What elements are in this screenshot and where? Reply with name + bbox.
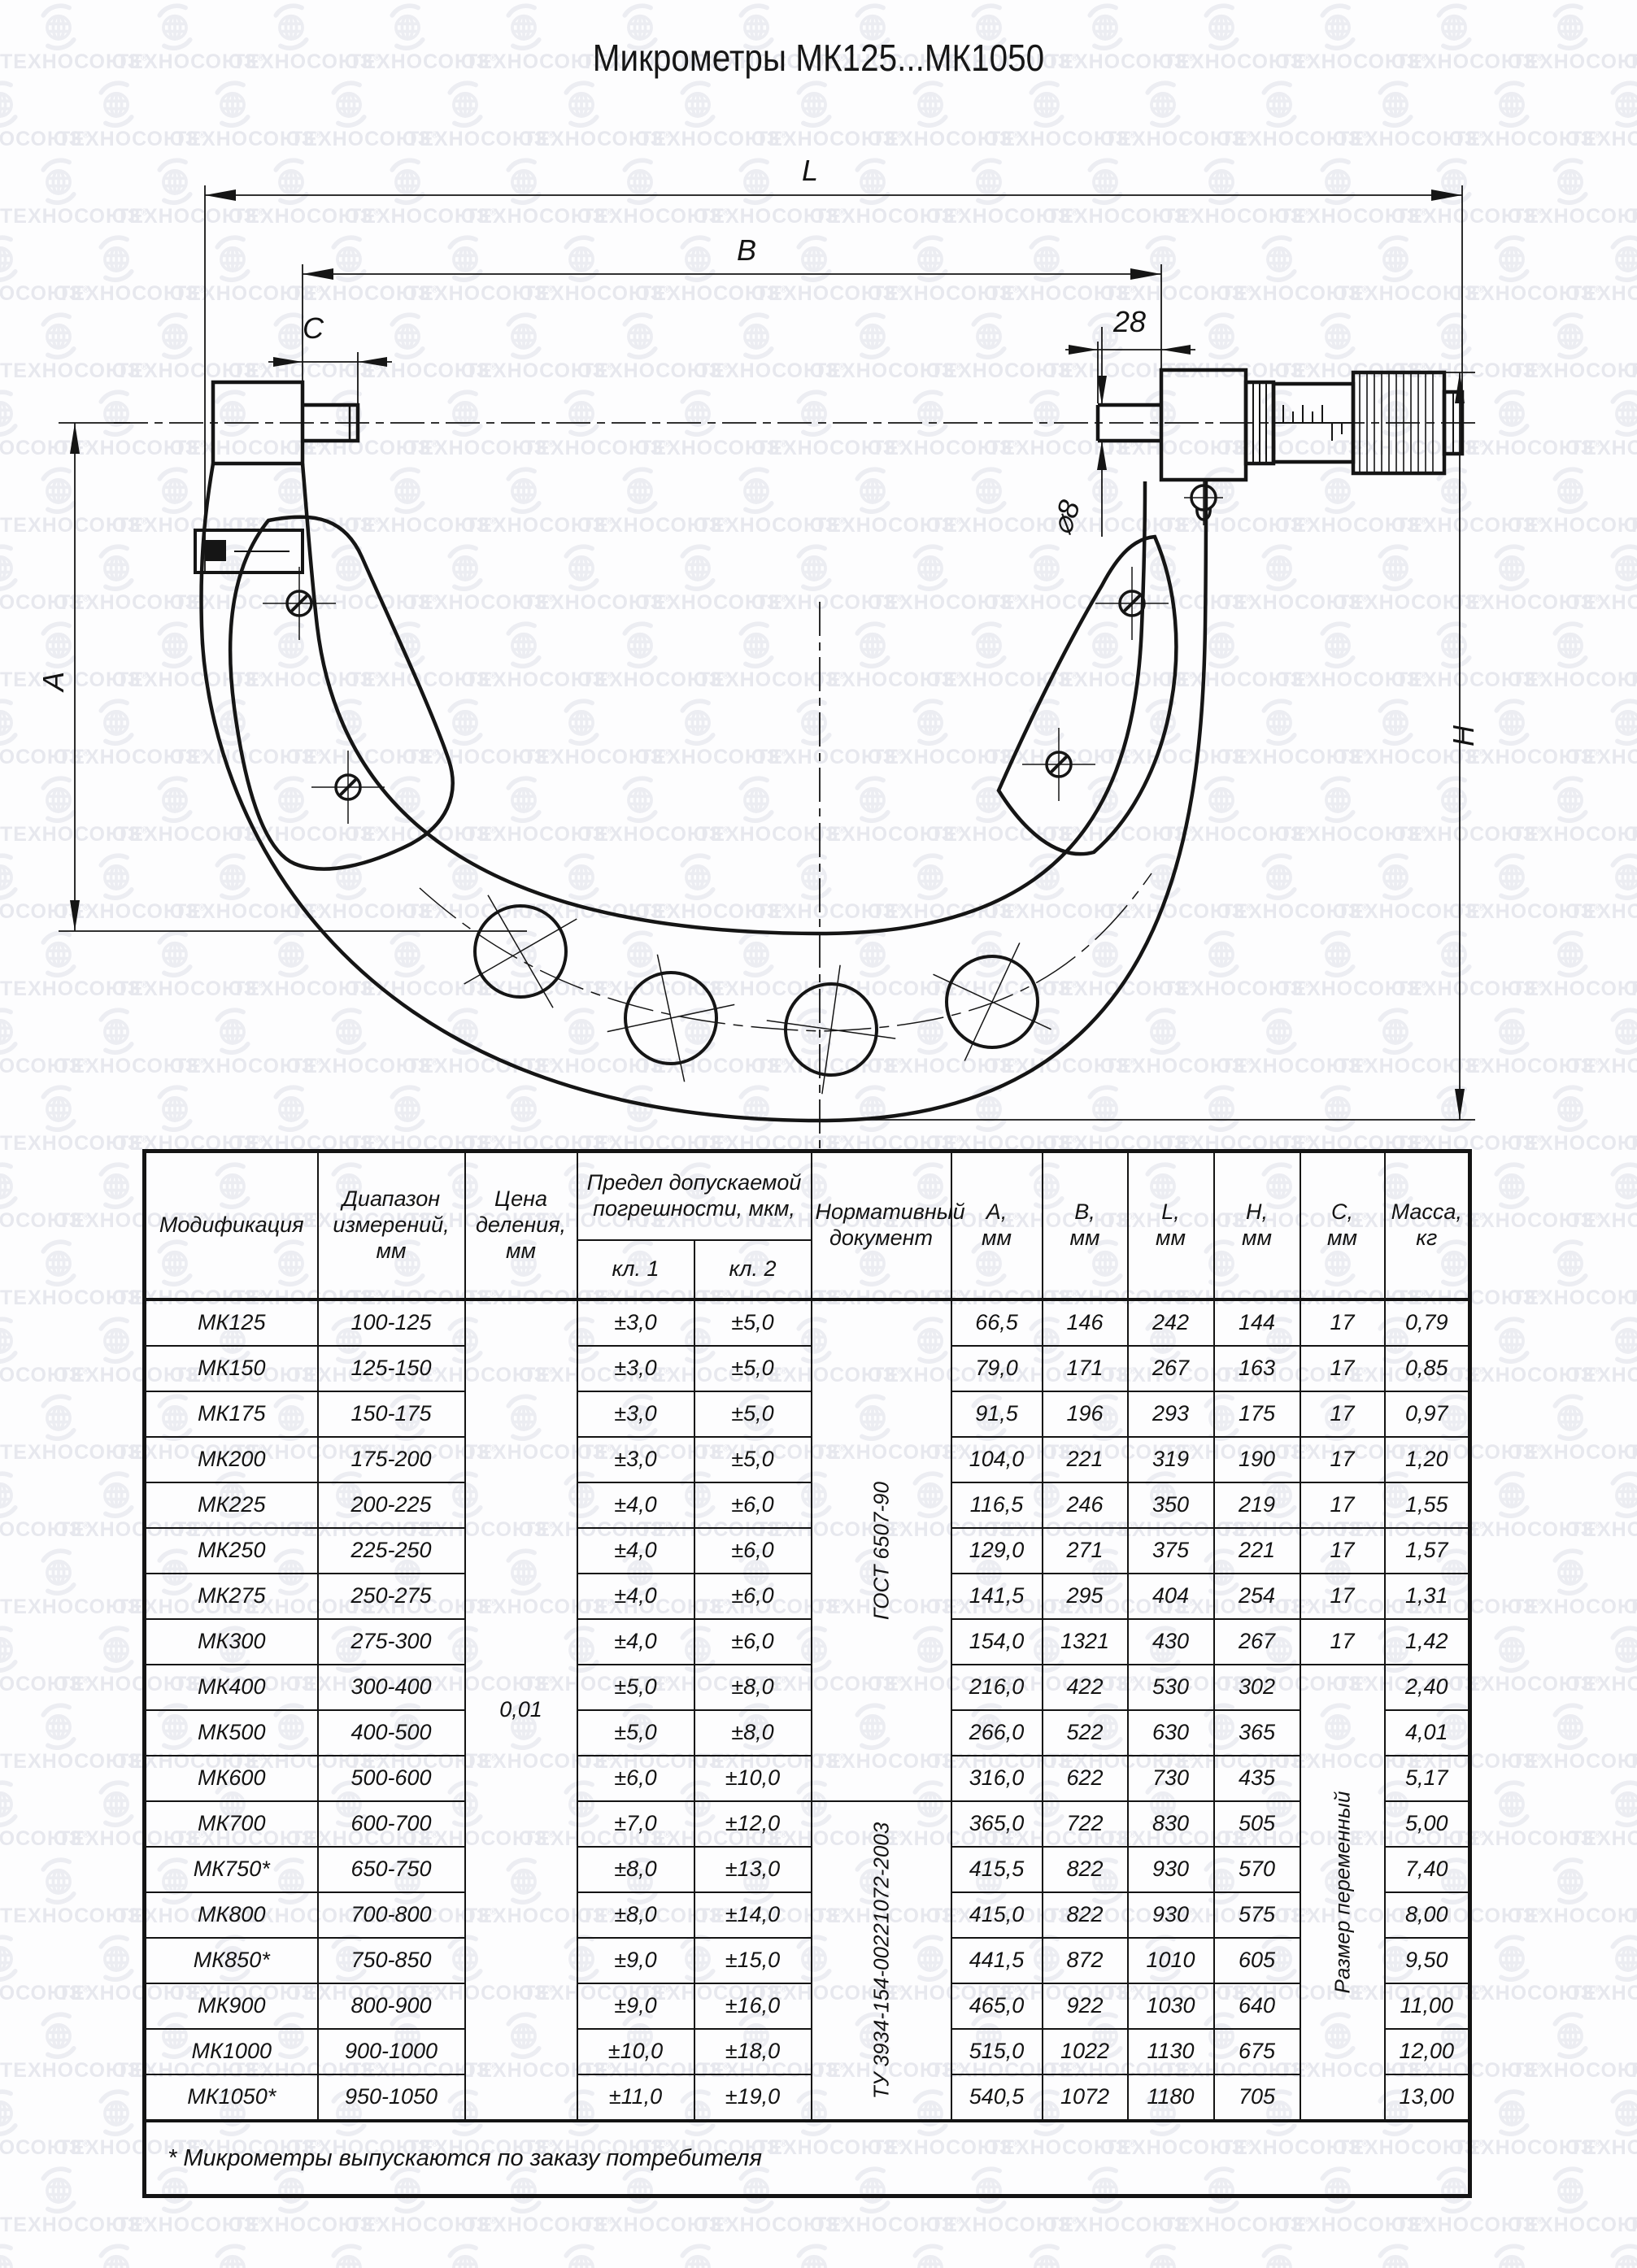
cell-dim-l: 375 xyxy=(1128,1528,1214,1574)
cell-class2: ±6,0 xyxy=(694,1574,812,1619)
cell-dim-h: 267 xyxy=(1214,1619,1300,1665)
cell-model: МК750* xyxy=(145,1847,318,1892)
insulating-plate-right xyxy=(999,537,1176,854)
cell-mass: 5,00 xyxy=(1385,1801,1470,1847)
cell-dim-b: 146 xyxy=(1043,1299,1128,1346)
cell-dim-b: 822 xyxy=(1043,1847,1128,1892)
cell-dim-h: 163 xyxy=(1214,1346,1300,1391)
cell-dim-l: 1030 xyxy=(1128,1983,1214,2029)
cell-dim-a: 66,5 xyxy=(951,1299,1043,1346)
cell-class1: ±10,0 xyxy=(577,2029,694,2074)
cell-dim-h: 254 xyxy=(1214,1574,1300,1619)
table-row: МК800700-800±8,0±14,0415,08229305758,00 xyxy=(145,1892,1470,1938)
cell-dim-l: 267 xyxy=(1128,1346,1214,1391)
cell-dim-l: 930 xyxy=(1128,1847,1214,1892)
cell-model: МК200 xyxy=(145,1437,318,1482)
table-row: МК125100-1250,01±3,0±5,0ГОСТ 6507-9066,5… xyxy=(145,1299,1470,1346)
cell-dim-l: 630 xyxy=(1128,1710,1214,1756)
cell-class2: ±6,0 xyxy=(694,1482,812,1528)
cell-class2: ±8,0 xyxy=(694,1665,812,1710)
cell-dim-a: 91,5 xyxy=(951,1391,1043,1437)
cell-model: МК600 xyxy=(145,1756,318,1801)
cell-dim-b: 1321 xyxy=(1043,1619,1128,1665)
cell-model: МК250 xyxy=(145,1528,318,1574)
cell-dim-h: 190 xyxy=(1214,1437,1300,1482)
cell-range: 900-1000 xyxy=(318,2029,465,2074)
cell-model: МК125 xyxy=(145,1299,318,1346)
cell-class2: ±6,0 xyxy=(694,1528,812,1574)
cell-class1: ±5,0 xyxy=(577,1710,694,1756)
cell-class2: ±5,0 xyxy=(694,1299,812,1346)
cell-dim-h: 505 xyxy=(1214,1801,1300,1847)
cell-dim-a: 365,0 xyxy=(951,1801,1043,1847)
cell-dim-h: 605 xyxy=(1214,1938,1300,1983)
cell-dim-b: 822 xyxy=(1043,1892,1128,1938)
col-header-dim-l: L, мм xyxy=(1128,1151,1214,1300)
table-row: МК700600-700±7,0±12,0ТУ 3934-154-0022107… xyxy=(145,1801,1470,1847)
cell-class2: ±14,0 xyxy=(694,1892,812,1938)
cell-range: 150-175 xyxy=(318,1391,465,1437)
cell-dim-b: 872 xyxy=(1043,1938,1128,1983)
micrometer-technical-drawing: L B C 28 ⌀8 A H xyxy=(0,0,1637,1155)
table-row: МК150125-150±3,0±5,079,0171267163170,85 xyxy=(145,1346,1470,1391)
cell-dim-h: 675 xyxy=(1214,2029,1300,2074)
cell-range: 600-700 xyxy=(318,1801,465,1847)
cell-document-gost: ГОСТ 6507-90 xyxy=(812,1299,951,1801)
cell-dim-a: 216,0 xyxy=(951,1665,1043,1710)
col-header-mass: Масса, кг xyxy=(1385,1151,1470,1300)
cell-dim-b: 221 xyxy=(1043,1437,1128,1482)
spec-table: Модификация Диапазон измерений, мм Цена … xyxy=(142,1149,1472,2198)
dim-label-28: 28 xyxy=(1112,305,1146,338)
cell-class1: ±5,0 xyxy=(577,1665,694,1710)
cell-dim-h: 575 xyxy=(1214,1892,1300,1938)
cell-mass: 0,97 xyxy=(1385,1391,1470,1437)
col-header-dim-a: А, мм xyxy=(951,1151,1043,1300)
cell-mass: 13,00 xyxy=(1385,2074,1470,2121)
cell-mass: 9,50 xyxy=(1385,1938,1470,1983)
cell-mass: 8,00 xyxy=(1385,1892,1470,1938)
col-header-class2: кл. 2 xyxy=(694,1240,812,1299)
cell-model: МК800 xyxy=(145,1892,318,1938)
label-plate xyxy=(195,530,303,572)
cell-class2: ±8,0 xyxy=(694,1710,812,1756)
cell-mass: 1,20 xyxy=(1385,1437,1470,1482)
cell-dim-b: 271 xyxy=(1043,1528,1128,1574)
cell-dim-h: 705 xyxy=(1214,2074,1300,2121)
cell-dim-a: 266,0 xyxy=(951,1710,1043,1756)
cell-dim-b: 295 xyxy=(1043,1574,1128,1619)
cell-dim-l: 404 xyxy=(1128,1574,1214,1619)
cell-mass: 0,79 xyxy=(1385,1299,1470,1346)
cell-dim-h: 435 xyxy=(1214,1756,1300,1801)
cell-range: 950-1050 xyxy=(318,2074,465,2121)
cell-dim-c-variable: Размер переменный xyxy=(1300,1665,1385,2121)
catalog-page: Микрометры МК125...МК1050 xyxy=(0,0,1637,2268)
cell-dim-a: 141,5 xyxy=(951,1574,1043,1619)
cell-class1: ±4,0 xyxy=(577,1619,694,1665)
dim-label-B: B xyxy=(737,233,756,267)
table-row: МК1000900-1000±10,0±18,0515,010221130675… xyxy=(145,2029,1470,2074)
cell-dim-h: 302 xyxy=(1214,1665,1300,1710)
cell-dim-b: 422 xyxy=(1043,1665,1128,1710)
dim-label-dia8: ⌀8 xyxy=(1044,496,1086,538)
cell-dim-l: 319 xyxy=(1128,1437,1214,1482)
table-row: МК500400-500±5,0±8,0266,05226303654,01 xyxy=(145,1710,1470,1756)
cell-dim-c: 17 xyxy=(1300,1391,1385,1437)
cell-dim-a: 441,5 xyxy=(951,1938,1043,1983)
cell-range: 650-750 xyxy=(318,1847,465,1892)
cell-mass: 1,57 xyxy=(1385,1528,1470,1574)
cell-class1: ±8,0 xyxy=(577,1892,694,1938)
cell-mass: 7,40 xyxy=(1385,1847,1470,1892)
cell-range: 100-125 xyxy=(318,1299,465,1346)
cell-dim-c: 17 xyxy=(1300,1299,1385,1346)
head-bracket xyxy=(1161,370,1246,480)
cell-mass: 0,85 xyxy=(1385,1346,1470,1391)
cell-dim-h: 365 xyxy=(1214,1710,1300,1756)
cell-class2: ±5,0 xyxy=(694,1437,812,1482)
cell-range: 800-900 xyxy=(318,1983,465,2029)
col-header-division: Цена деления, мм xyxy=(465,1151,577,1300)
cell-dim-b: 522 xyxy=(1043,1710,1128,1756)
cell-class1: ±6,0 xyxy=(577,1756,694,1801)
cell-class1: ±8,0 xyxy=(577,1847,694,1892)
cell-dim-b: 922 xyxy=(1043,1983,1128,2029)
dim-label-C: C xyxy=(303,311,324,345)
cell-range: 225-250 xyxy=(318,1528,465,1574)
cell-dim-a: 79,0 xyxy=(951,1346,1043,1391)
cell-class1: ±9,0 xyxy=(577,1983,694,2029)
cell-range: 275-300 xyxy=(318,1619,465,1665)
cell-class1: ±9,0 xyxy=(577,1938,694,1983)
col-header-dim-c: С, мм xyxy=(1300,1151,1385,1300)
cell-class1: ±4,0 xyxy=(577,1528,694,1574)
cell-model: МК1000 xyxy=(145,2029,318,2074)
cell-dim-l: 530 xyxy=(1128,1665,1214,1710)
table-row: МК850*750-850±9,0±15,0441,587210106059,5… xyxy=(145,1938,1470,1983)
cell-model: МК225 xyxy=(145,1482,318,1528)
cell-mass: 1,42 xyxy=(1385,1619,1470,1665)
cell-mass: 2,40 xyxy=(1385,1665,1470,1710)
dim-label-H: H xyxy=(1447,725,1480,747)
cell-class2: ±5,0 xyxy=(694,1391,812,1437)
cell-model: МК850* xyxy=(145,1938,318,1983)
cell-class1: ±3,0 xyxy=(577,1391,694,1437)
cell-class2: ±16,0 xyxy=(694,1983,812,2029)
col-header-document: Нормативный документ xyxy=(812,1151,951,1300)
cell-mass: 4,01 xyxy=(1385,1710,1470,1756)
frame-outer-contour xyxy=(202,464,1206,1121)
cell-dim-a: 154,0 xyxy=(951,1619,1043,1665)
cell-model: МК1050* xyxy=(145,2074,318,2121)
cell-dim-l: 293 xyxy=(1128,1391,1214,1437)
cell-class2: ±18,0 xyxy=(694,2029,812,2074)
cell-division-merged: 0,01 xyxy=(465,1299,577,2121)
cell-range: 125-150 xyxy=(318,1346,465,1391)
cell-dim-h: 219 xyxy=(1214,1482,1300,1528)
cell-class1: ±3,0 xyxy=(577,1346,694,1391)
cell-class2: ±10,0 xyxy=(694,1756,812,1801)
cell-dim-c: 17 xyxy=(1300,1482,1385,1528)
cell-dim-c: 17 xyxy=(1300,1346,1385,1391)
cell-dim-c: 17 xyxy=(1300,1574,1385,1619)
cell-model: МК700 xyxy=(145,1801,318,1847)
cell-dim-l: 1010 xyxy=(1128,1938,1214,1983)
cell-dim-c: 17 xyxy=(1300,1528,1385,1574)
cell-range: 700-800 xyxy=(318,1892,465,1938)
frame-inner-contour xyxy=(303,464,1145,934)
plate-screws xyxy=(263,567,1169,824)
cell-class2: ±13,0 xyxy=(694,1847,812,1892)
cell-dim-l: 1130 xyxy=(1128,2029,1214,2074)
cell-dim-h: 175 xyxy=(1214,1391,1300,1437)
cell-dim-l: 730 xyxy=(1128,1756,1214,1801)
table-row: МК200175-200±3,0±5,0104,0221319190171,20 xyxy=(145,1437,1470,1482)
col-header-range: Диапазон измерений, мм xyxy=(318,1151,465,1300)
cell-dim-c: 17 xyxy=(1300,1437,1385,1482)
cell-range: 500-600 xyxy=(318,1756,465,1801)
cell-model: МК175 xyxy=(145,1391,318,1437)
cell-class1: ±4,0 xyxy=(577,1482,694,1528)
insulating-plate-left xyxy=(230,517,453,869)
cell-model: МК150 xyxy=(145,1346,318,1391)
cell-dim-a: 540,5 xyxy=(951,2074,1043,2121)
cell-dim-b: 622 xyxy=(1043,1756,1128,1801)
cell-range: 300-400 xyxy=(318,1665,465,1710)
cell-dim-l: 242 xyxy=(1128,1299,1214,1346)
cell-range: 400-500 xyxy=(318,1710,465,1756)
spec-table-body: МК125100-1250,01±3,0±5,0ГОСТ 6507-9066,5… xyxy=(145,1299,1470,2121)
table-row: МК400300-400±5,0±8,0216,0422530302Размер… xyxy=(145,1665,1470,1710)
cell-dim-b: 1022 xyxy=(1043,2029,1128,2074)
cell-dim-h: 570 xyxy=(1214,1847,1300,1892)
cell-model: МК900 xyxy=(145,1983,318,2029)
cell-dim-a: 415,5 xyxy=(951,1847,1043,1892)
cell-class1: ±11,0 xyxy=(577,2074,694,2121)
cell-class2: ±19,0 xyxy=(694,2074,812,2121)
cell-dim-b: 196 xyxy=(1043,1391,1128,1437)
col-header-error-limit: Предел допускаемой погрешности, мкм, xyxy=(577,1151,812,1241)
table-row: МК275250-275±4,0±6,0141,5295404254171,31 xyxy=(145,1574,1470,1619)
cell-class2: ±6,0 xyxy=(694,1619,812,1665)
cell-dim-l: 1180 xyxy=(1128,2074,1214,2121)
cell-dim-h: 640 xyxy=(1214,1983,1300,2029)
cell-dim-a: 104,0 xyxy=(951,1437,1043,1482)
col-header-dim-h: Н, мм xyxy=(1214,1151,1300,1300)
cell-mass: 5,17 xyxy=(1385,1756,1470,1801)
cell-dim-b: 246 xyxy=(1043,1482,1128,1528)
cell-dim-b: 171 xyxy=(1043,1346,1128,1391)
cell-class1: ±7,0 xyxy=(577,1801,694,1847)
table-row: МК225200-225±4,0±6,0116,5246350219171,55 xyxy=(145,1482,1470,1528)
dim-label-L: L xyxy=(802,154,818,187)
cell-dim-a: 515,0 xyxy=(951,2029,1043,2074)
cell-dim-c: 17 xyxy=(1300,1619,1385,1665)
table-row: МК900800-900±9,0±16,0465,0922103064011,0… xyxy=(145,1983,1470,2029)
cell-dim-a: 129,0 xyxy=(951,1528,1043,1574)
cell-range: 200-225 xyxy=(318,1482,465,1528)
cell-class2: ±15,0 xyxy=(694,1938,812,1983)
cell-dim-b: 1072 xyxy=(1043,2074,1128,2121)
cell-document-tu: ТУ 3934-154-00221072-2003 xyxy=(812,1801,951,2121)
cell-model: МК500 xyxy=(145,1710,318,1756)
cell-dim-b: 722 xyxy=(1043,1801,1128,1847)
cell-dim-l: 930 xyxy=(1128,1892,1214,1938)
cell-model: МК275 xyxy=(145,1574,318,1619)
cell-dim-a: 116,5 xyxy=(951,1482,1043,1528)
col-header-class1: кл. 1 xyxy=(577,1240,694,1299)
table-row: МК1050*950-1050±11,0±19,0540,51072118070… xyxy=(145,2074,1470,2121)
cell-range: 175-200 xyxy=(318,1437,465,1482)
cell-dim-h: 221 xyxy=(1214,1528,1300,1574)
dim-label-A: A xyxy=(37,672,70,693)
table-footnote: * Микрометры выпускаются по заказу потре… xyxy=(145,2121,1470,2196)
cell-dim-a: 316,0 xyxy=(951,1756,1043,1801)
cell-dim-a: 415,0 xyxy=(951,1892,1043,1938)
cell-dim-a: 465,0 xyxy=(951,1983,1043,2029)
table-row: МК175150-175±3,0±5,091,5196293175170,97 xyxy=(145,1391,1470,1437)
lock-knob xyxy=(1184,480,1223,525)
cell-mass: 12,00 xyxy=(1385,2029,1470,2074)
cell-model: МК400 xyxy=(145,1665,318,1710)
table-row: МК300275-300±4,0±6,0154,01321430267171,4… xyxy=(145,1619,1470,1665)
cell-model: МК300 xyxy=(145,1619,318,1665)
cell-class1: ±4,0 xyxy=(577,1574,694,1619)
cell-mass: 11,00 xyxy=(1385,1983,1470,2029)
cell-mass: 1,55 xyxy=(1385,1482,1470,1528)
table-row: МК750*650-750±8,0±13,0415,58229305707,40 xyxy=(145,1847,1470,1892)
cell-class2: ±12,0 xyxy=(694,1801,812,1847)
cell-dim-l: 430 xyxy=(1128,1619,1214,1665)
cell-range: 250-275 xyxy=(318,1574,465,1619)
cell-range: 750-850 xyxy=(318,1938,465,1983)
cell-dim-h: 144 xyxy=(1214,1299,1300,1346)
table-row: МК250225-250±4,0±6,0129,0271375221171,57 xyxy=(145,1528,1470,1574)
cell-class1: ±3,0 xyxy=(577,1299,694,1346)
col-header-dim-b: В, мм xyxy=(1043,1151,1128,1300)
cell-mass: 1,31 xyxy=(1385,1574,1470,1619)
table-row: МК600500-600±6,0±10,0316,06227304355,17 xyxy=(145,1756,1470,1801)
cell-class1: ±3,0 xyxy=(577,1437,694,1482)
cell-dim-l: 830 xyxy=(1128,1801,1214,1847)
cell-dim-l: 350 xyxy=(1128,1482,1214,1528)
col-header-modification: Модификация xyxy=(145,1151,318,1300)
cell-class2: ±5,0 xyxy=(694,1346,812,1391)
